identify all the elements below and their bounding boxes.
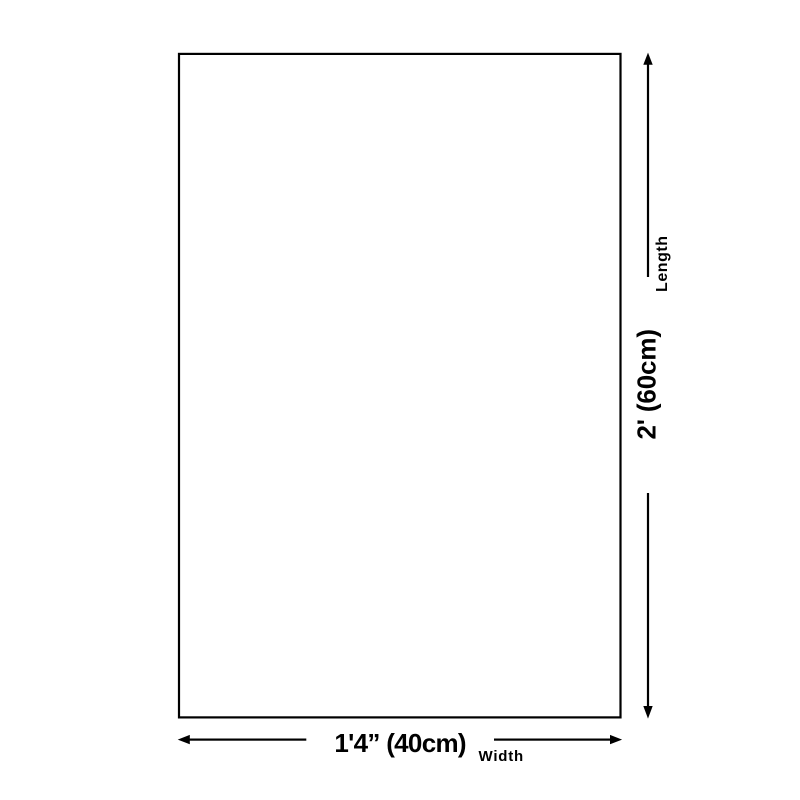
svg-text:2' (60cm): 2' (60cm) [631,329,661,439]
svg-text:Length: Length [654,235,671,292]
svg-text:1'4” (40cm): 1'4” (40cm) [334,728,465,758]
svg-text:Width: Width [479,748,525,765]
